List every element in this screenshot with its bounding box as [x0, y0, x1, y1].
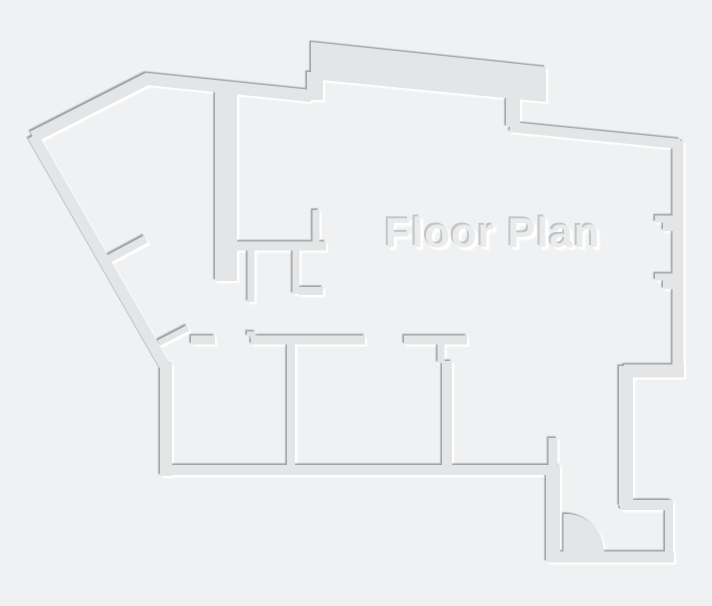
outer-wall-top-left — [33, 79, 311, 137]
top-protrusion-wall — [311, 42, 546, 102]
floor-plan: Floor Plan — [0, 0, 712, 606]
walls-group — [33, 42, 684, 562]
floor-plan-title: Floor Plan — [385, 212, 600, 254]
floor-plan-drawing — [0, 0, 712, 606]
left-diagonal-partition-stub — [105, 239, 146, 261]
left-outer-wall-diagonal — [33, 136, 166, 368]
entry-door-swing — [566, 514, 604, 552]
top-right-diagonal-wall — [510, 127, 680, 144]
room1-door-leaf — [159, 328, 188, 343]
right-wall-notch2-block — [663, 280, 676, 289]
top-protrusion-joiner — [307, 72, 323, 100]
right-wall-notch1-block — [663, 222, 676, 231]
